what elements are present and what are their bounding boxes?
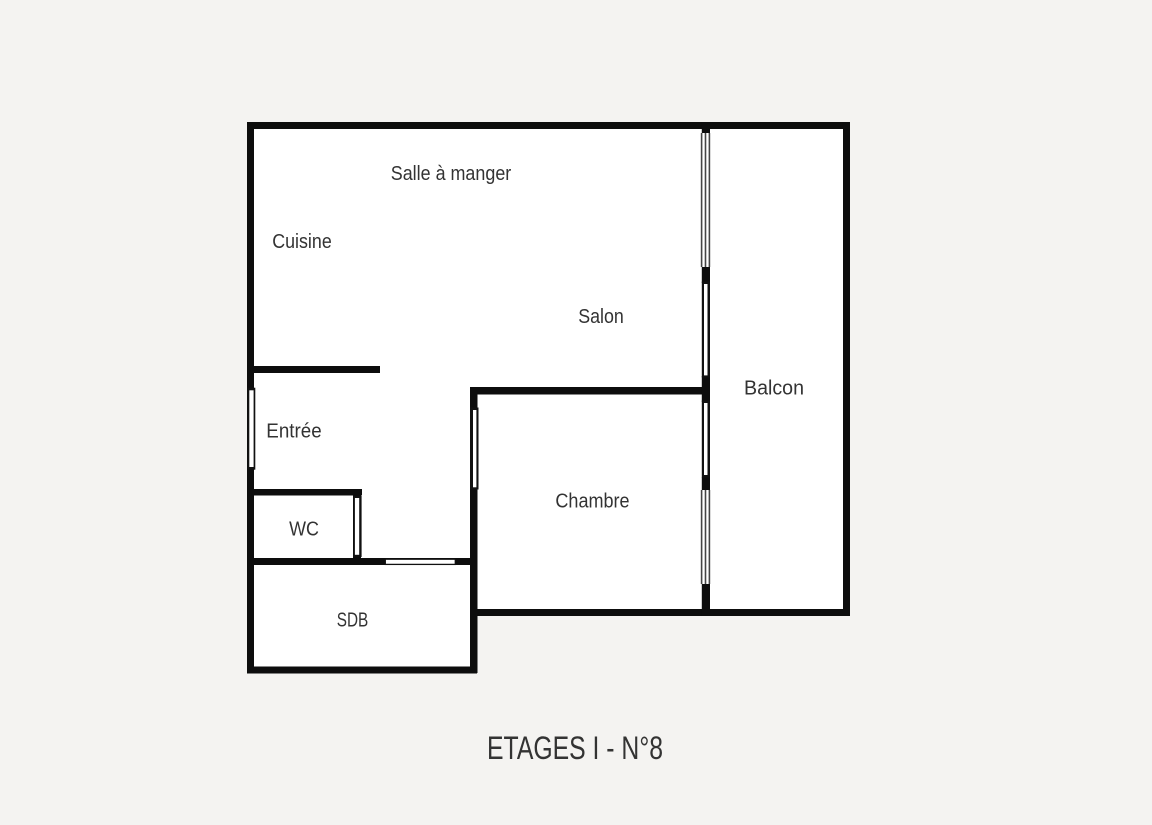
svg-text:Balcon: Balcon <box>744 377 804 400</box>
svg-text:Salon: Salon <box>578 305 624 328</box>
svg-text:SDB: SDB <box>337 609 369 632</box>
svg-text:WC: WC <box>289 518 319 541</box>
svg-text:Chambre: Chambre <box>555 490 629 513</box>
svg-text:ETAGES I - N°8: ETAGES I - N°8 <box>487 730 663 766</box>
svg-text:Entrée: Entrée <box>266 420 321 443</box>
svg-text:Salle à manger: Salle à manger <box>391 162 512 185</box>
svg-text:Cuisine: Cuisine <box>272 230 332 253</box>
